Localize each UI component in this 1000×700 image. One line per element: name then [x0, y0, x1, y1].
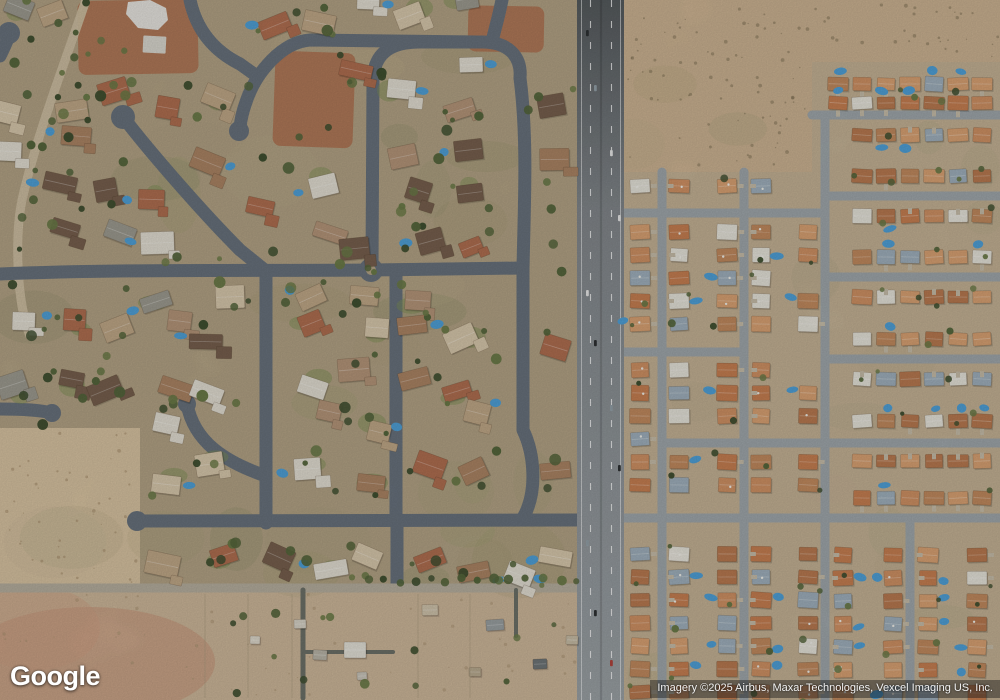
attribution-text: Imagery ©2025 Airbus, Maxar Technologies… [657, 682, 993, 694]
map-canvas[interactable]: Google Imagery ©2025 Airbus, Maxar Techn… [0, 0, 1000, 700]
imagery-noise-overlay [0, 0, 1000, 700]
attribution-bar: Imagery ©2025 Airbus, Maxar Technologies… [650, 680, 1000, 698]
satellite-imagery-layer [0, 0, 1000, 700]
google-logo[interactable]: Google [10, 661, 100, 692]
